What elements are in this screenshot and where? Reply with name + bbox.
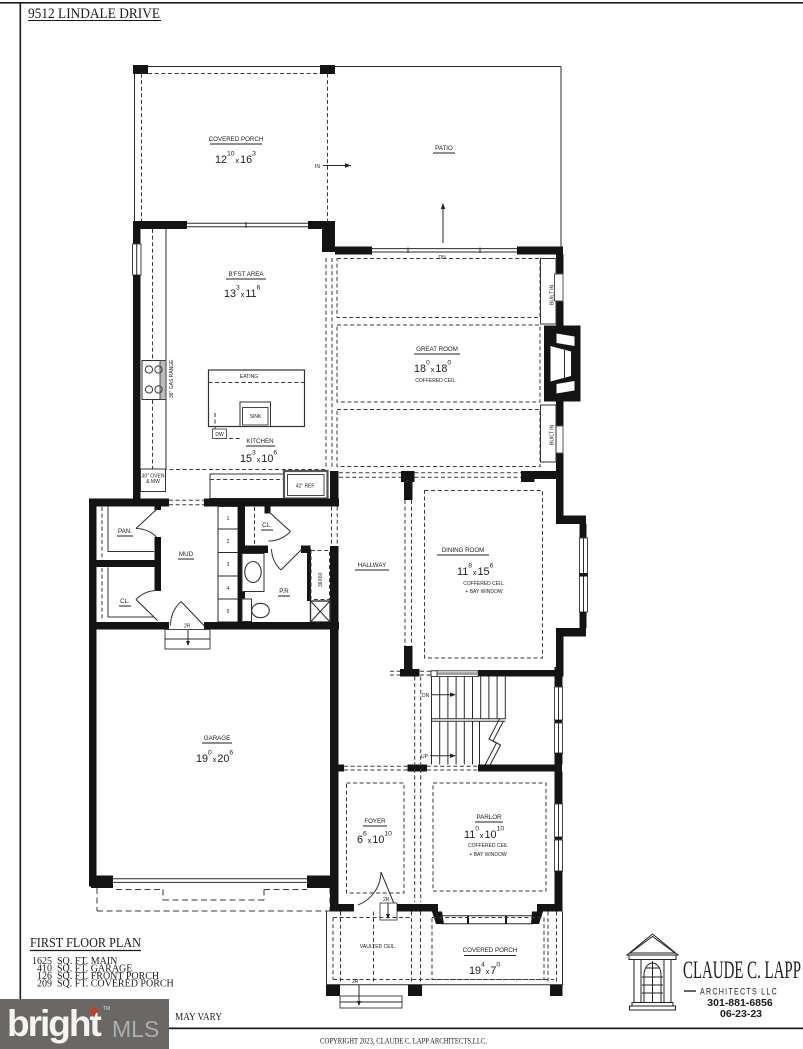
svg-text:SINK: SINK [250, 414, 262, 420]
svg-text:9512 LINDALE DRIVE: 9512 LINDALE DRIVE [28, 6, 160, 22]
svg-text:MUD: MUD [179, 551, 194, 558]
svg-text:FIRST FLOOR PLAN: FIRST FLOOR PLAN [30, 935, 141, 950]
svg-text:CL.: CL. [120, 598, 130, 605]
svg-text:2: 2 [227, 539, 230, 545]
svg-text:COVERED PORCH: COVERED PORCH [209, 136, 264, 143]
svg-text:HALLWAY: HALLWAY [358, 562, 386, 569]
svg-text:2R: 2R [184, 624, 191, 630]
svg-text:209: 209 [37, 979, 52, 990]
svg-text:PAN.: PAN. [118, 528, 132, 535]
svg-text:+ BAY WINDOW: + BAY WINDOW [469, 852, 506, 858]
svg-text:42" REF.: 42" REF. [296, 484, 316, 490]
svg-text:DINING ROOM: DINING ROOM [442, 547, 485, 554]
svg-text:IN: IN [315, 164, 320, 170]
svg-text:& MW: & MW [146, 479, 160, 485]
svg-text:P.R: P.R [279, 588, 289, 595]
svg-text:COFFERED CEIL.: COFFERED CEIL. [463, 581, 504, 587]
svg-text:TM: TM [103, 1006, 110, 1012]
svg-text:PATIO: PATIO [435, 145, 453, 152]
svg-text:PARLOR: PARLOR [477, 814, 503, 821]
svg-text:KITCHEN: KITCHEN [246, 438, 273, 445]
svg-text:+ BAY WINDOW: + BAY WINDOW [465, 589, 502, 595]
svg-text:GARAGE: GARAGE [204, 735, 230, 742]
svg-text:2R: 2R [383, 897, 390, 903]
svg-text:DW: DW [215, 432, 224, 438]
svg-text:COFFERED CEIL: COFFERED CEIL [468, 843, 508, 849]
svg-text:3: 3 [227, 562, 230, 568]
svg-text:BUILT IN: BUILT IN [550, 425, 556, 445]
svg-text:MAY VARY: MAY VARY [175, 1011, 222, 1023]
svg-text:2R: 2R [352, 979, 359, 985]
svg-text:36" GAS RANGE: 36" GAS RANGE [169, 359, 175, 398]
svg-text:UP: UP [421, 754, 429, 760]
svg-text:EATING: EATING [240, 374, 258, 380]
svg-text:FOYER: FOYER [364, 818, 386, 825]
svg-text:ARCHITECTS LLC: ARCHITECTS LLC [700, 987, 778, 998]
svg-text:VAULTED CEIL.: VAULTED CEIL. [360, 944, 396, 950]
svg-text:DN: DN [422, 693, 430, 699]
svg-text:06-23-23: 06-23-23 [720, 1008, 762, 1020]
svg-text:bright: bright [7, 1003, 101, 1044]
svg-text:36X60: 36X60 [318, 572, 324, 587]
svg-text:SQ. FT. COVERED PORCH: SQ. FT. COVERED PORCH [57, 979, 174, 990]
svg-text:GREAT ROOM: GREAT ROOM [416, 346, 458, 353]
svg-text:COPYRIGHT 2023, CLAUDE C. LAPP: COPYRIGHT 2023, CLAUDE C. LAPP ARCHITECT… [320, 1037, 487, 1046]
svg-text:CLAUDE C. LAPP: CLAUDE C. LAPP [683, 957, 801, 984]
svg-text:COVERED PORCH: COVERED PORCH [463, 947, 518, 954]
svg-text:1: 1 [227, 516, 230, 522]
svg-text:B'FST AREA: B'FST AREA [228, 271, 264, 278]
svg-text:5: 5 [227, 609, 230, 615]
svg-text:CL.: CL. [262, 522, 272, 529]
svg-text:MLS: MLS [112, 1016, 159, 1042]
svg-text:4: 4 [227, 586, 230, 592]
svg-text:COFFERED CEIL.: COFFERED CEIL. [415, 378, 456, 384]
